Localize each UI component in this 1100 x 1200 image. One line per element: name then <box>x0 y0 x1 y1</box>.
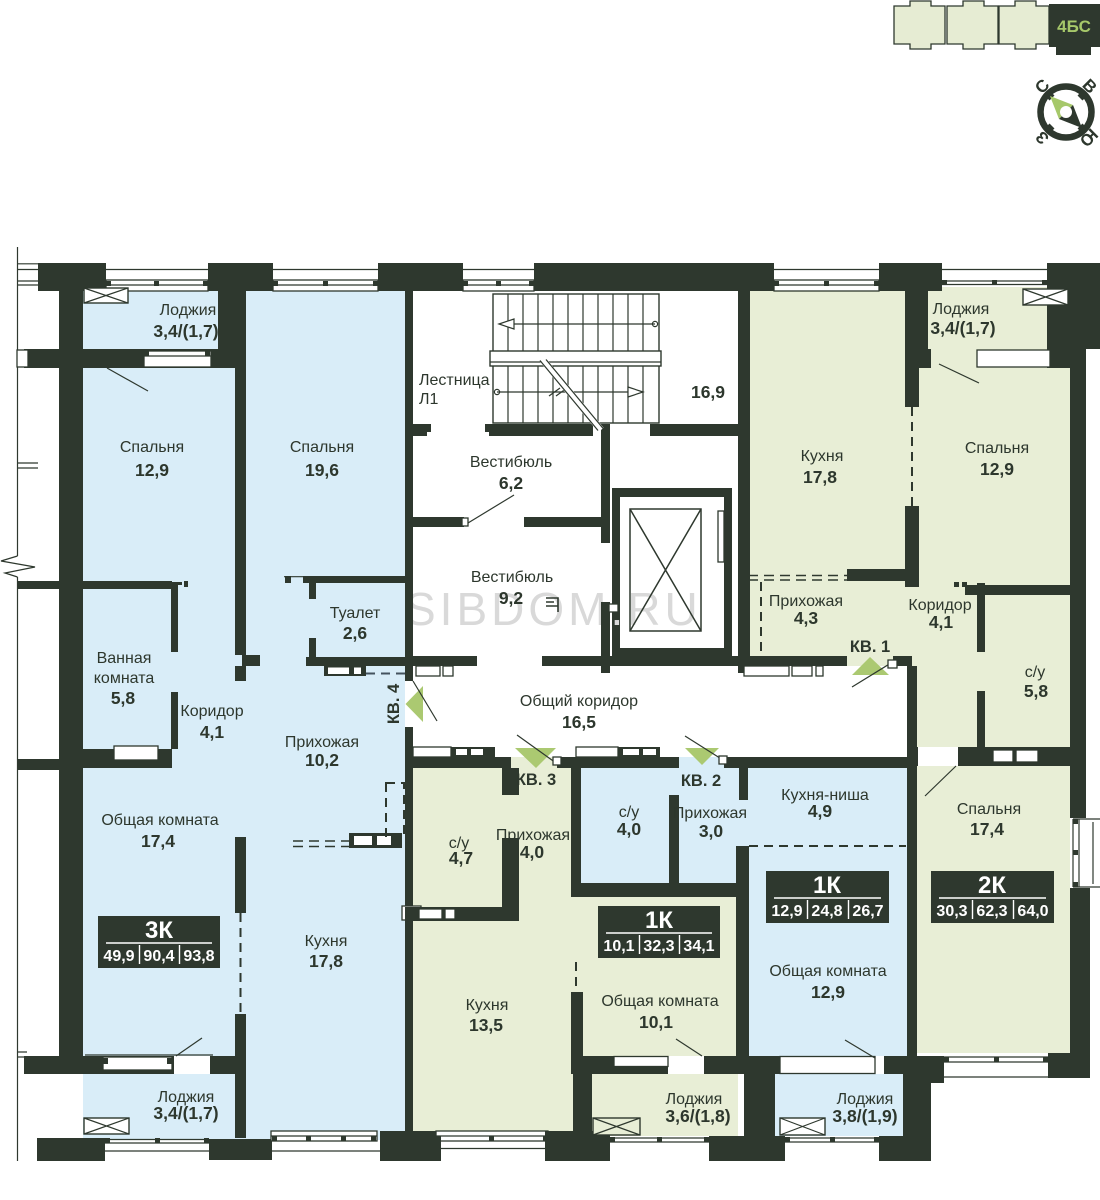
svg-text:Л1: Л1 <box>419 391 439 408</box>
svg-text:3К: 3К <box>145 917 173 944</box>
svg-text:62,3: 62,3 <box>976 903 1007 920</box>
svg-text:Кухня: Кухня <box>305 933 348 950</box>
svg-text:3,4/(1,7): 3,4/(1,7) <box>153 1103 218 1123</box>
svg-text:17,4: 17,4 <box>970 819 1004 839</box>
svg-text:4,0: 4,0 <box>617 819 642 839</box>
svg-text:Лестница: Лестница <box>419 372 490 389</box>
svg-text:Коридор: Коридор <box>180 703 243 720</box>
svg-text:12,9: 12,9 <box>771 903 802 920</box>
svg-text:17,8: 17,8 <box>803 467 837 487</box>
svg-text:3,6/(1,8): 3,6/(1,8) <box>665 1106 730 1126</box>
svg-text:3,8/(1,9): 3,8/(1,9) <box>832 1106 897 1126</box>
svg-text:4,1: 4,1 <box>929 612 954 632</box>
svg-text:16,9: 16,9 <box>691 382 725 402</box>
svg-text:5,8: 5,8 <box>111 688 136 708</box>
svg-text:49,9: 49,9 <box>103 948 134 965</box>
svg-text:9,2: 9,2 <box>499 588 524 608</box>
svg-text:Спальня: Спальня <box>957 801 1021 818</box>
svg-text:34,1: 34,1 <box>683 938 714 955</box>
svg-text:КВ. 1: КВ. 1 <box>850 638 890 656</box>
svg-text:Лоджия: Лоджия <box>933 301 990 318</box>
svg-text:4,1: 4,1 <box>200 722 225 742</box>
svg-text:Вестибюль: Вестибюль <box>470 454 552 471</box>
svg-text:17,8: 17,8 <box>309 951 343 971</box>
svg-text:Кухня: Кухня <box>466 997 509 1014</box>
svg-text:Прихожая: Прихожая <box>673 805 747 822</box>
svg-text:Общий коридор: Общий коридор <box>520 693 638 710</box>
svg-text:10,1: 10,1 <box>639 1012 673 1032</box>
svg-text:90,4: 90,4 <box>143 948 174 965</box>
svg-text:4,0: 4,0 <box>520 842 545 862</box>
svg-text:Спальня: Спальня <box>120 439 184 456</box>
svg-text:10,1: 10,1 <box>603 938 634 955</box>
svg-text:4,3: 4,3 <box>794 608 819 628</box>
svg-text:64,0: 64,0 <box>1017 903 1048 920</box>
svg-text:3,4/(1,7): 3,4/(1,7) <box>153 321 218 341</box>
svg-text:Спальня: Спальня <box>965 440 1029 457</box>
svg-text:Прихожая: Прихожая <box>285 734 359 751</box>
svg-text:SIBDOM.RU: SIBDOM.RU <box>405 583 702 635</box>
svg-text:32,3: 32,3 <box>643 938 674 955</box>
svg-text:Туалет: Туалет <box>330 605 381 622</box>
svg-text:1К: 1К <box>813 872 841 899</box>
svg-text:Кухня: Кухня <box>801 448 844 465</box>
svg-text:13,5: 13,5 <box>469 1015 503 1035</box>
svg-text:12,9: 12,9 <box>980 459 1014 479</box>
svg-text:6,2: 6,2 <box>499 473 524 493</box>
svg-text:1К: 1К <box>645 907 673 934</box>
svg-text:10,2: 10,2 <box>305 750 339 770</box>
svg-text:17,4: 17,4 <box>141 831 175 851</box>
svg-text:24,8: 24,8 <box>811 903 842 920</box>
svg-text:16,5: 16,5 <box>562 712 596 732</box>
svg-text:5,8: 5,8 <box>1024 681 1049 701</box>
svg-text:3,0: 3,0 <box>699 821 724 841</box>
svg-text:2,6: 2,6 <box>343 623 368 643</box>
svg-text:КВ. 2: КВ. 2 <box>681 772 721 790</box>
svg-text:Спальня: Спальня <box>290 439 354 456</box>
svg-text:Ванная: Ванная <box>97 650 152 667</box>
svg-text:Общая комната: Общая комната <box>601 993 718 1010</box>
svg-text:с/у: с/у <box>1025 664 1045 681</box>
svg-text:26,7: 26,7 <box>852 903 883 920</box>
svg-text:4,7: 4,7 <box>449 848 473 868</box>
svg-text:93,8: 93,8 <box>183 948 214 965</box>
svg-text:3,4/(1,7): 3,4/(1,7) <box>930 318 995 338</box>
svg-text:Общая комната: Общая комната <box>769 963 886 980</box>
svg-text:комната: комната <box>94 670 155 687</box>
svg-text:2К: 2К <box>978 872 1006 899</box>
svg-text:12,9: 12,9 <box>811 982 845 1002</box>
svg-text:КВ. 3: КВ. 3 <box>516 771 556 789</box>
svg-text:Лоджия: Лоджия <box>160 302 217 319</box>
svg-text:Общая комната: Общая комната <box>101 812 218 829</box>
svg-text:4,9: 4,9 <box>808 801 833 821</box>
svg-text:Вестибюль: Вестибюль <box>471 569 553 586</box>
svg-text:КВ. 4: КВ. 4 <box>385 683 403 724</box>
svg-text:19,6: 19,6 <box>305 460 339 480</box>
svg-text:4БС: 4БС <box>1057 17 1091 36</box>
svg-text:12,9: 12,9 <box>135 460 169 480</box>
svg-text:30,3: 30,3 <box>936 903 967 920</box>
